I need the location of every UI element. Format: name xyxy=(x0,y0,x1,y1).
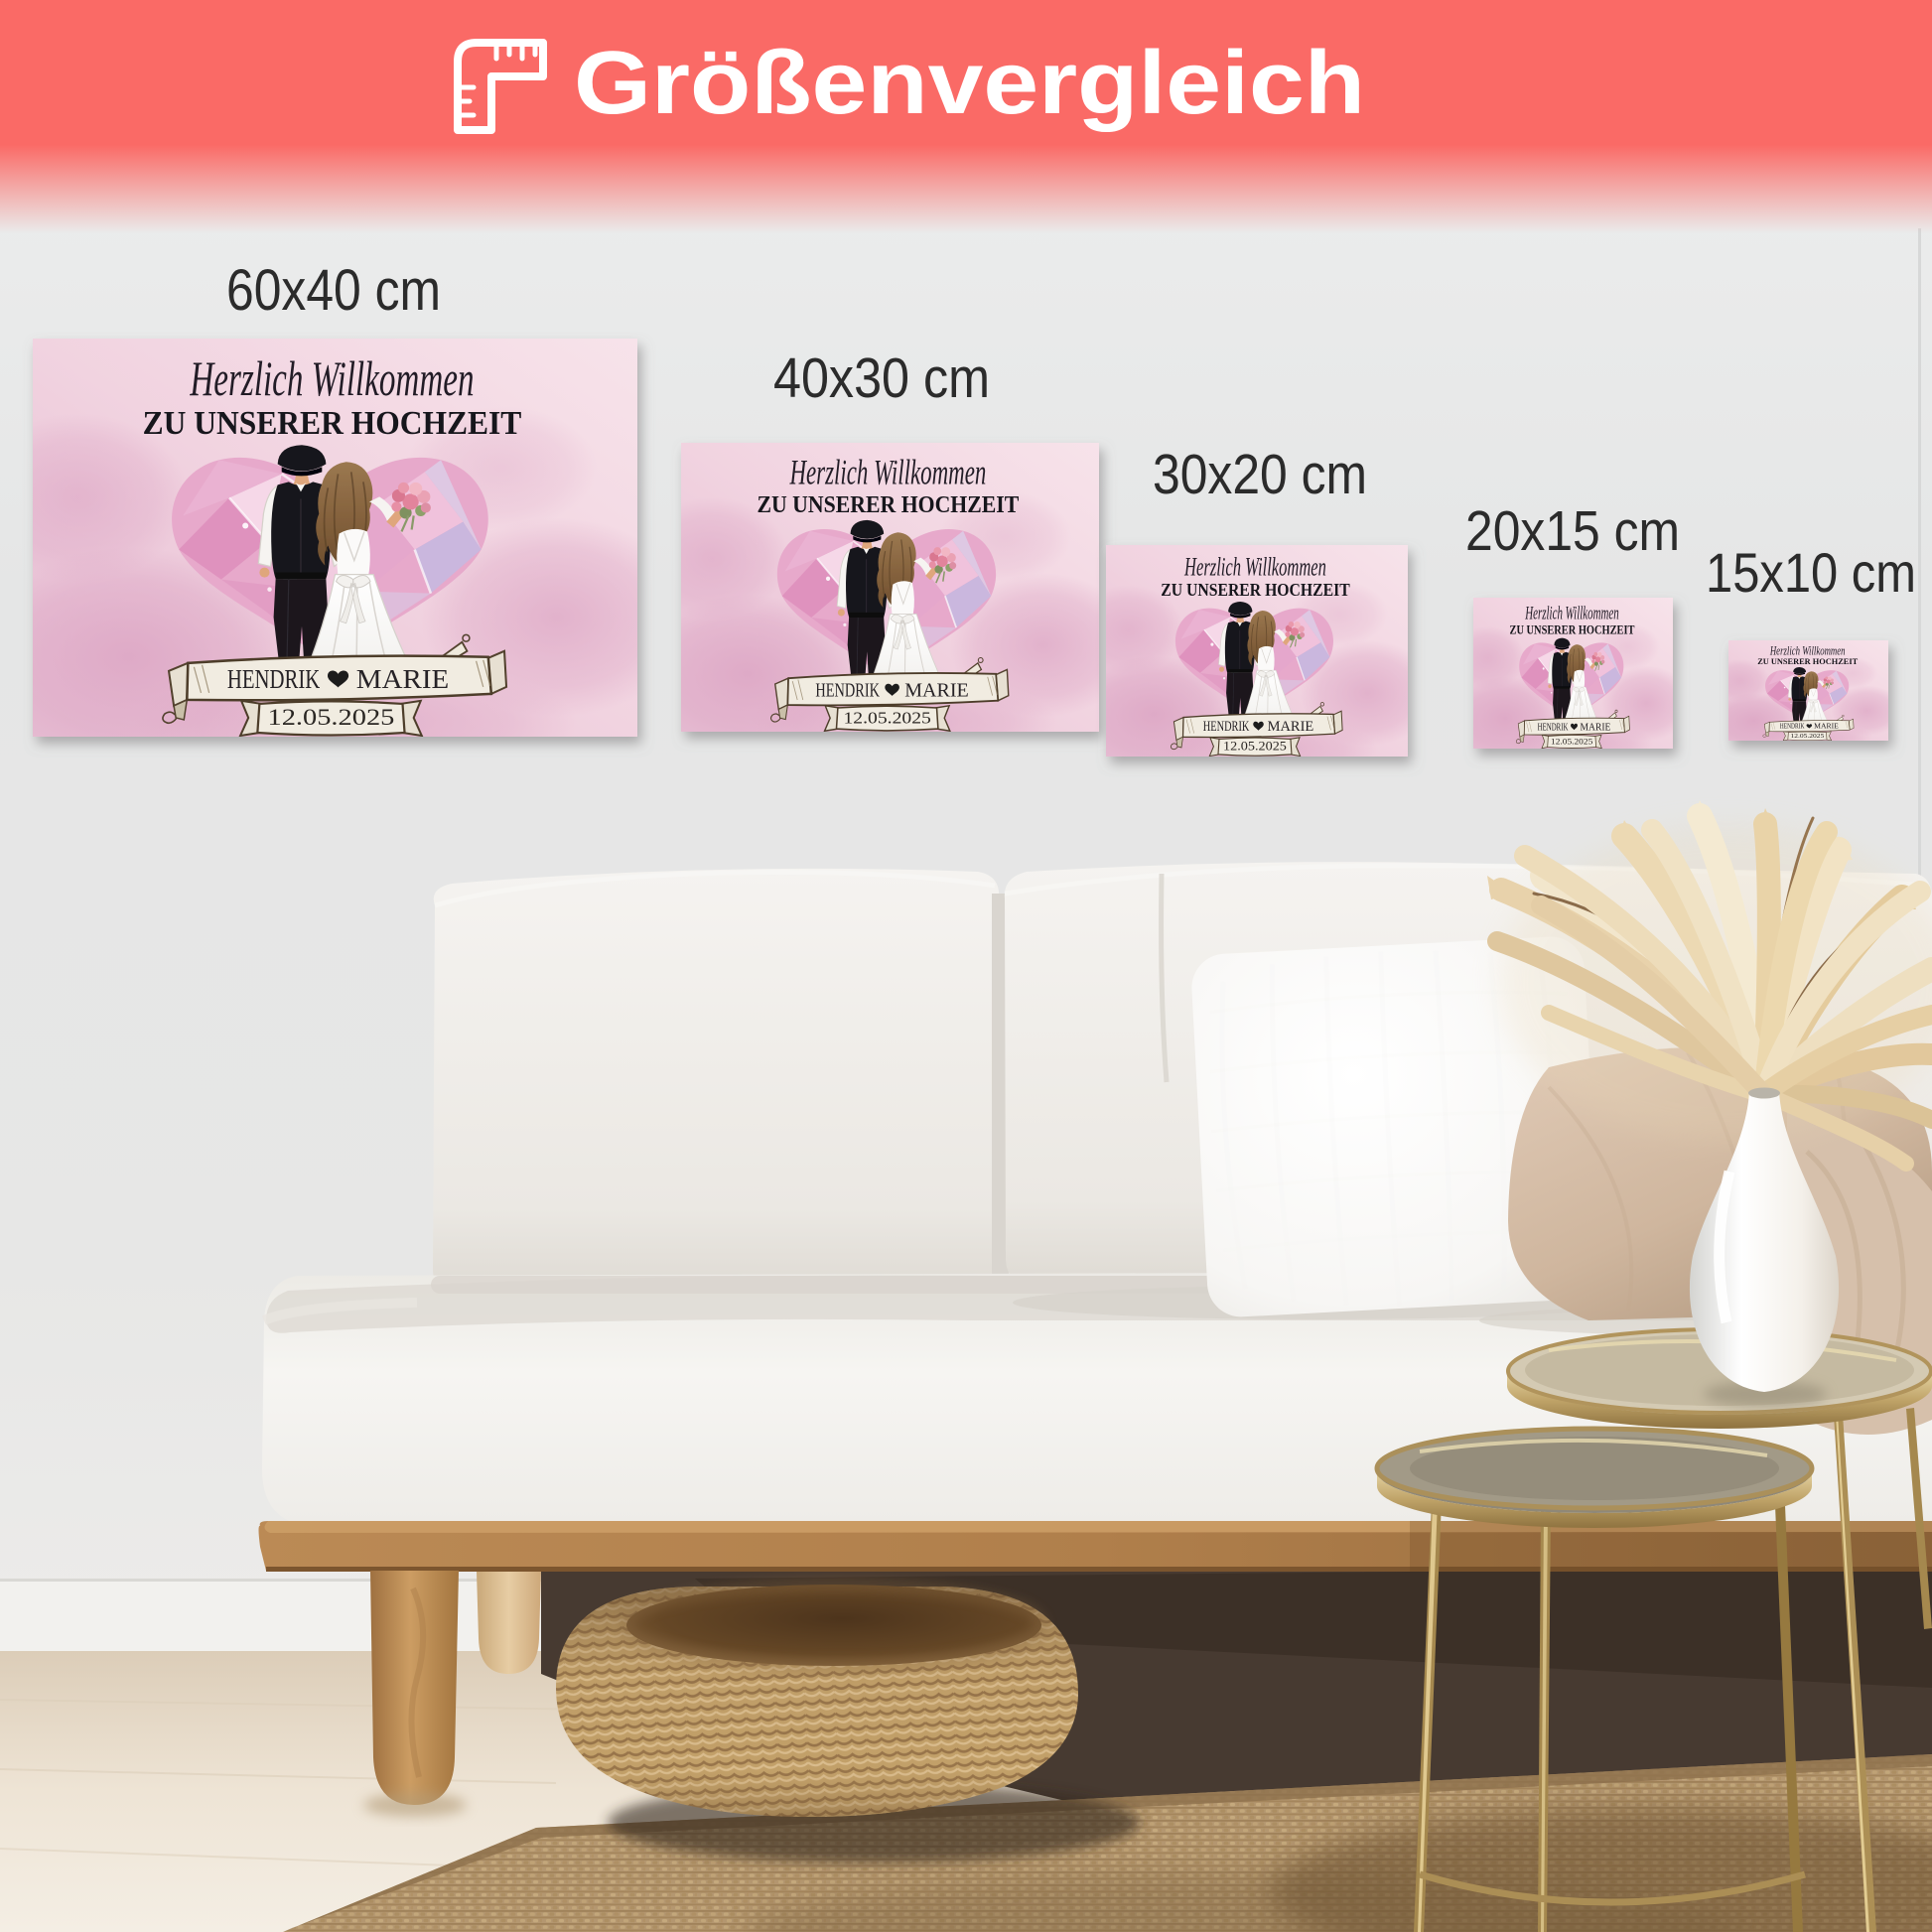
svg-text:Größenvergleich: Größenvergleich xyxy=(574,34,1365,133)
svg-text:15x10 cm: 15x10 cm xyxy=(1706,541,1916,604)
svg-text:60x40 cm: 60x40 cm xyxy=(226,258,441,323)
svg-text:30x20 cm: 30x20 cm xyxy=(1153,443,1367,506)
svg-text:20x15 cm: 20x15 cm xyxy=(1465,499,1680,563)
svg-text:40x30 cm: 40x30 cm xyxy=(773,346,990,410)
